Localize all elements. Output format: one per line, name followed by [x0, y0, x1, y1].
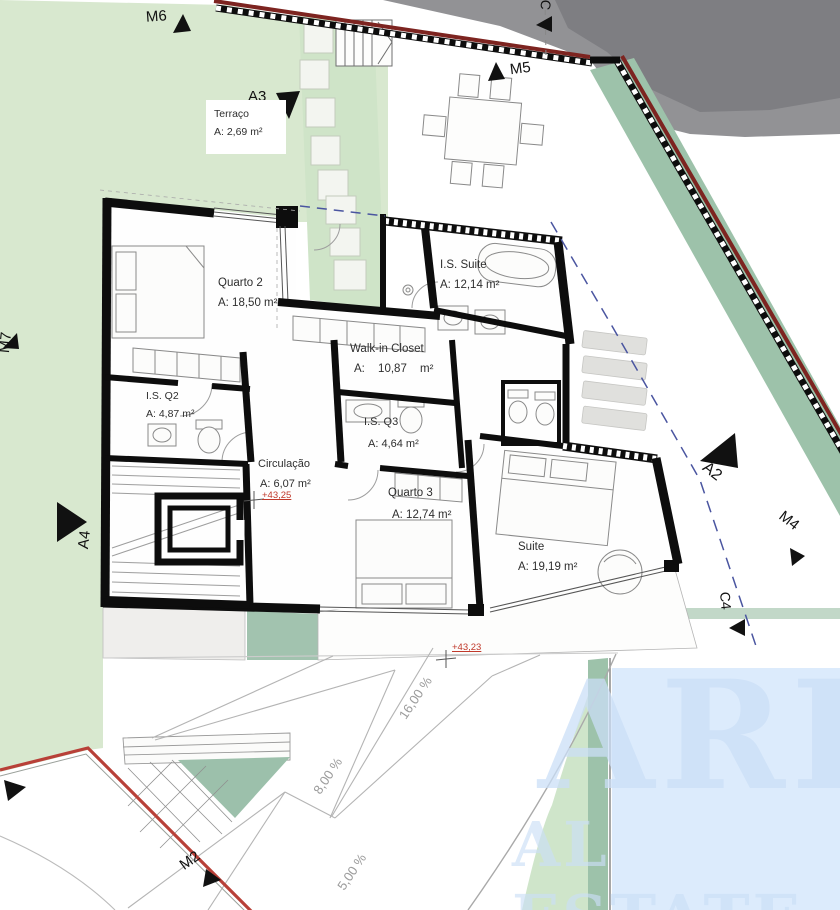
room-suite-area: A: 19,19 m² — [518, 560, 577, 574]
room-quarto2-name: Quarto 2 — [218, 276, 263, 290]
room-quarto2-area: A: 18,50 m² — [218, 296, 277, 310]
room-suite-name: Suite — [518, 540, 544, 554]
watermark-line2: AL ESTATE — [512, 808, 840, 910]
c4-triangle — [729, 619, 745, 636]
m5-triangle — [488, 62, 505, 81]
room-terraco-name: Terraço — [214, 108, 249, 121]
marker-m6: M6 — [145, 7, 167, 27]
green-strip-east — [680, 608, 840, 619]
room-walkin-name: Walk-in Closet — [350, 342, 424, 356]
room-quarto3-area: A: 12,74 m² — [392, 508, 451, 522]
m4-triangle — [790, 548, 805, 566]
room-quarto3-name: Quarto 3 — [388, 486, 433, 500]
room-terraco-area: A: 2,69 m² — [214, 126, 262, 139]
marker-m7: M7 — [0, 331, 17, 354]
m1-triangle — [4, 780, 26, 801]
entry-path-band — [299, 16, 392, 310]
marker-c4: C4 — [715, 591, 734, 610]
room-walkin-area: A: 10,87 m² — [354, 362, 433, 376]
marker-m5: M5 — [509, 59, 532, 80]
dining-table — [418, 71, 547, 191]
room-circulacao-name: Circulação — [258, 458, 310, 472]
garden-structure-southwest — [123, 733, 290, 848]
room-is-q2-area: A: 4,87 m² — [146, 408, 194, 421]
room-is-suite-name: I.S. Suite — [440, 258, 487, 272]
watermark-line1: ARE — [538, 648, 840, 824]
marker-a4: A4 — [75, 530, 96, 550]
room-is-q3-area: A: 4,64 m² — [368, 438, 419, 452]
floor-plan-canvas: ARE AL ESTATE M6 C M5 A3 M7 A4 A2 M4 C4 … — [0, 0, 840, 910]
room-is-q2-name: I.S. Q2 — [146, 390, 179, 403]
level-upper: +43,25 — [262, 490, 291, 502]
room-is-suite-area: A: 12,14 m² — [440, 278, 499, 292]
room-is-q3-name: I.S. Q3 — [364, 416, 398, 430]
level-lower: +43,23 — [452, 642, 481, 654]
